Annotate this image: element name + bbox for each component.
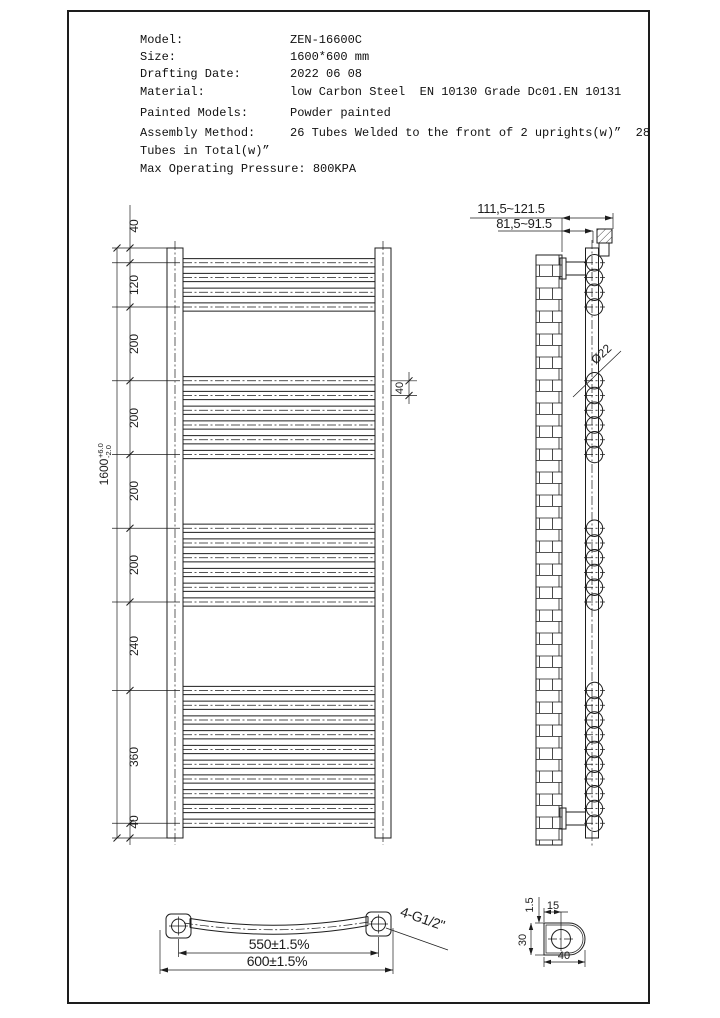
top-bracket bbox=[560, 258, 586, 279]
front-pitch-dim: 40 bbox=[391, 372, 417, 404]
section-view: 15 1.5 30 40 bbox=[517, 897, 585, 967]
front-tubes bbox=[183, 259, 375, 828]
thread-spec-label: 4-G1/2" bbox=[398, 903, 447, 933]
spec-label-date: Drafting Date: bbox=[140, 67, 290, 81]
front-dim-120: 120 bbox=[127, 275, 141, 295]
front-tolerance-minus: -2.0 bbox=[104, 445, 113, 458]
front-dim-240: 240 bbox=[127, 636, 141, 656]
spec-continuation-text: Tubes in Total(w)” bbox=[140, 144, 270, 158]
spec-row-model: Model:ZEN-16600C bbox=[140, 33, 362, 47]
section-hole-offset-label: 15 bbox=[547, 900, 559, 912]
front-dim-200-b: 200 bbox=[127, 408, 141, 428]
bottom-view: 550±1.5% 600±1.5% 4-G1/2" bbox=[160, 903, 448, 974]
spec-row-assembly: Assembly Method:26 Tubes Welded to the f… bbox=[140, 126, 650, 140]
side-dimensions: 111,5~121.5 81,5~91.5 bbox=[470, 201, 613, 252]
spec-row-date: Drafting Date:2022 06 08 bbox=[140, 67, 362, 81]
overall-width-label: 600±1.5% bbox=[247, 953, 308, 969]
spec-value-assembly: 26 Tubes Welded to the front of 2 uprigh… bbox=[290, 126, 650, 140]
thread-callout: 4-G1/2" bbox=[386, 903, 448, 950]
spec-label-size: Size: bbox=[140, 50, 290, 64]
front-dim-40-top: 40 bbox=[127, 219, 141, 233]
top-plug bbox=[597, 229, 612, 243]
side-wall-distance-outer-label: 111,5~121.5 bbox=[477, 201, 544, 216]
front-view: 40 120 200 200 200 200 240 360 40 1600 +… bbox=[96, 205, 417, 845]
spec-value-size: 1600*600 mm bbox=[290, 50, 369, 64]
spec-value-material: low Carbon Steel EN 10130 Grade Dc01.EN … bbox=[290, 85, 621, 99]
tube-centers-width-label: 550±1.5% bbox=[249, 936, 310, 952]
right-fitting bbox=[366, 912, 391, 936]
front-overall-height-label: 1600 +6.0 -2.0 bbox=[96, 443, 113, 485]
spec-value-date: 2022 06 08 bbox=[290, 67, 362, 81]
front-tube-pitch-label: 40 bbox=[394, 382, 406, 394]
section-dimensions: 15 1.5 30 40 bbox=[517, 897, 585, 967]
spec-label-assembly: Assembly Method: bbox=[140, 126, 290, 140]
section-wall-thickness-label: 1.5 bbox=[524, 897, 536, 912]
spec-label-model: Model: bbox=[140, 33, 290, 47]
spec-pressure-text: Max Operating Pressure: 800KPA bbox=[140, 162, 356, 176]
front-dimension-lines bbox=[112, 245, 180, 842]
bottom-dimensions: 550±1.5% 600±1.5% bbox=[160, 928, 393, 974]
front-dim-40-bottom: 40 bbox=[127, 815, 141, 829]
spec-row-continuation: Tubes in Total(w)” bbox=[140, 144, 270, 158]
spec-value-painted: Powder painted bbox=[290, 106, 391, 120]
wall-section bbox=[536, 255, 562, 845]
spec-row-material: Material:low Carbon Steel EN 10130 Grade… bbox=[140, 85, 621, 99]
side-wall-distance-inner-label: 81,5~91.5 bbox=[496, 216, 552, 231]
technical-drawing: 40 120 200 200 200 200 240 360 40 1600 +… bbox=[0, 0, 720, 1018]
spec-row-pressure: Max Operating Pressure: 800KPA bbox=[140, 162, 356, 176]
spec-row-size: Size:1600*600 mm bbox=[140, 50, 369, 64]
spec-label-painted: Painted Models: bbox=[140, 106, 290, 120]
front-dim-360: 360 bbox=[127, 747, 141, 767]
front-dim-200-d: 200 bbox=[127, 555, 141, 575]
front-dim-200-a: 200 bbox=[127, 334, 141, 354]
section-depth-label: 30 bbox=[517, 934, 529, 946]
bottom-bracket bbox=[560, 808, 586, 829]
side-tube-circles bbox=[584, 255, 605, 832]
front-overall-height-value: 1600 bbox=[97, 458, 111, 485]
top-plug-stem bbox=[599, 243, 609, 256]
side-view: 111,5~121.5 81,5~91.5 Ø22 bbox=[470, 201, 621, 846]
tube-top-edge bbox=[190, 917, 368, 926]
spec-label-material: Material: bbox=[140, 85, 290, 99]
spec-value-model: ZEN-16600C bbox=[290, 33, 362, 47]
drawing-page: 40 120 200 200 200 200 240 360 40 1600 +… bbox=[0, 0, 720, 1018]
left-fitting bbox=[166, 914, 191, 938]
front-dim-200-c: 200 bbox=[127, 481, 141, 501]
section-width-label: 40 bbox=[558, 950, 570, 962]
spec-row-painted: Painted Models:Powder painted bbox=[140, 106, 391, 120]
